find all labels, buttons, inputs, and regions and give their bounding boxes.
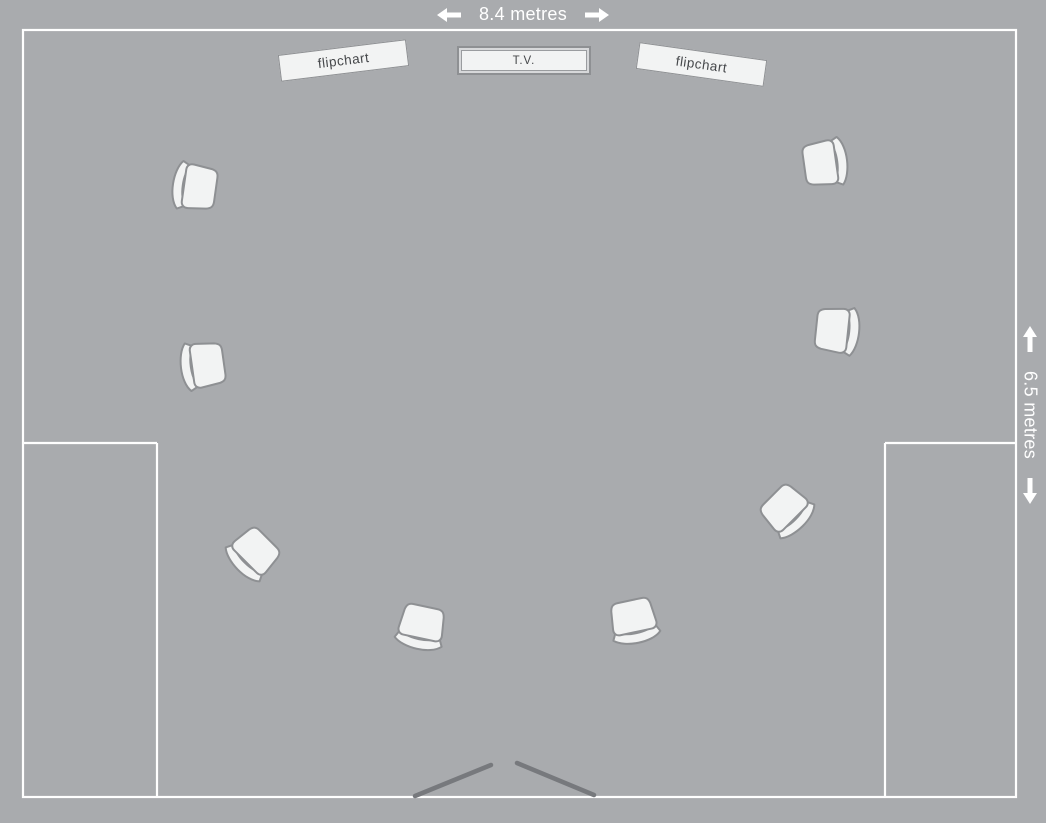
chair xyxy=(221,522,285,586)
arrow-right-icon xyxy=(585,7,609,23)
tv: T.V. xyxy=(457,46,591,75)
tv-screen: T.V. xyxy=(461,50,587,71)
chair xyxy=(393,602,449,654)
floor-plan-drawing xyxy=(0,0,1046,823)
chair xyxy=(606,596,662,648)
height-dimension: 6.5 metres xyxy=(1015,326,1045,504)
chair xyxy=(755,479,819,543)
width-dimension-label: 8.4 metres xyxy=(479,4,567,25)
chair xyxy=(170,160,219,214)
arrow-up-icon xyxy=(1022,326,1038,352)
chair-seat xyxy=(801,139,839,187)
flipchart-left-label: flipchart xyxy=(317,50,370,71)
door-swing-line xyxy=(517,763,594,795)
door-swing-line xyxy=(415,765,491,796)
tv-label: T.V. xyxy=(513,55,536,67)
chair xyxy=(801,136,850,190)
arrow-left-icon xyxy=(437,7,461,23)
room-outline xyxy=(23,30,1016,797)
floor-plan-canvas: 8.4 metres 6.5 metres flipchart T.V. fli… xyxy=(0,0,1046,823)
flipchart-right-label: flipchart xyxy=(675,53,728,75)
chair-seat xyxy=(814,306,850,353)
width-dimension: 8.4 metres xyxy=(0,4,1046,25)
chair-seat xyxy=(189,340,227,388)
arrow-down-icon xyxy=(1022,478,1038,504)
height-dimension-label: 6.5 metres xyxy=(1020,371,1041,459)
chair xyxy=(814,304,862,356)
chair-seat xyxy=(181,163,219,211)
chair xyxy=(178,338,227,392)
